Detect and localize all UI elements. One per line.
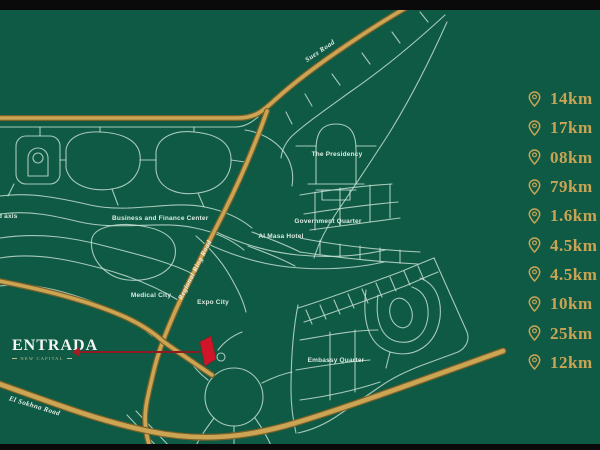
location-pin-icon <box>528 266 541 282</box>
label-axis-partial: d axis <box>0 213 18 220</box>
distance-value: 08km <box>550 149 593 166</box>
distance-value: 4.5km <box>550 266 597 283</box>
location-pin-icon <box>528 208 541 224</box>
distance-row: 12km <box>528 348 597 377</box>
distance-row: 4.5km <box>528 260 597 289</box>
brand-subtitle-row: NEW CAPITAL <box>12 356 72 361</box>
distance-row: 25km <box>528 318 597 347</box>
distance-value: 1.6km <box>550 207 597 224</box>
distance-value: 25km <box>550 325 593 342</box>
subtitle-dash-right <box>67 358 72 359</box>
location-pin-icon <box>528 296 541 312</box>
regional-ring-road <box>145 111 267 450</box>
distance-row: 17km <box>528 113 597 142</box>
distance-value: 4.5km <box>550 237 597 254</box>
distance-row: 10km <box>528 289 597 318</box>
label-the-presidency: The Presidency <box>309 151 365 158</box>
location-pin-icon <box>528 149 541 165</box>
el-sokhna-road <box>0 351 503 437</box>
label-medical-city: Medical City <box>128 292 174 299</box>
distance-list: 14km 17km 08km 79km 1.6km 4.5km 4.5km 1 <box>528 84 597 377</box>
label-government-quarter: Government Quarter <box>294 218 362 225</box>
street-network <box>0 12 468 450</box>
location-pin-icon <box>528 91 541 107</box>
brand-subtitle: NEW CAPITAL <box>20 356 63 361</box>
distance-row: 14km <box>528 84 597 113</box>
distance-value: 12km <box>550 354 593 371</box>
project-location-marker <box>200 336 216 366</box>
location-pin-icon <box>528 354 541 370</box>
brand-name: ENTRADA <box>12 338 72 355</box>
location-pin-icon <box>528 237 541 253</box>
distance-row: 1.6km <box>528 201 597 230</box>
distance-row: 08km <box>528 143 597 172</box>
letterbox-bottom <box>0 444 600 450</box>
label-expo-city: Expo City <box>194 299 232 306</box>
distance-row: 4.5km <box>528 230 597 259</box>
location-pin-icon <box>528 120 541 136</box>
label-al-masa-hotel: Al Masa Hotel <box>255 233 307 240</box>
label-embassy-quarter: Embassy Quarter <box>307 357 365 364</box>
distance-row: 79km <box>528 172 597 201</box>
location-pin-icon <box>528 325 541 341</box>
map-screen: The Presidency Business and Finance Cent… <box>0 0 600 450</box>
location-pin-icon <box>528 179 541 195</box>
distance-value: 10km <box>550 295 593 312</box>
distance-value: 17km <box>550 119 593 136</box>
brand-logo: ENTRADA NEW CAPITAL <box>12 338 72 361</box>
city-map-graphic <box>0 0 600 450</box>
pointer-arrow-icon <box>72 347 80 357</box>
letterbox-top <box>0 0 600 10</box>
distance-value: 79km <box>550 178 593 195</box>
label-business-and-finance-center: Business and Finance Center <box>112 215 204 222</box>
subtitle-dash-left <box>12 358 17 359</box>
distance-value: 14km <box>550 90 593 107</box>
pointer-line <box>80 351 200 353</box>
suez-road <box>0 0 434 118</box>
